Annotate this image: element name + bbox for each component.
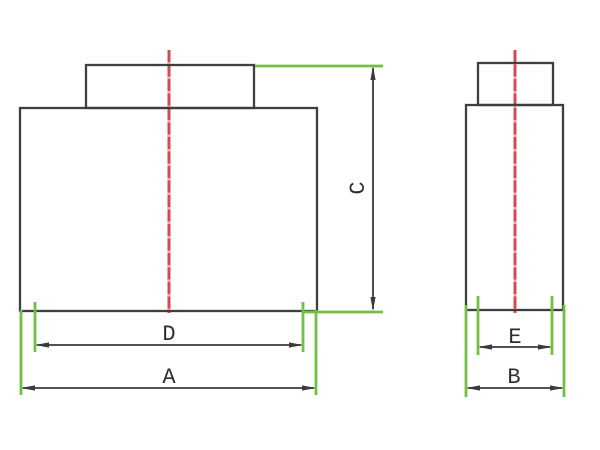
dim-label-E: E bbox=[508, 325, 521, 350]
drawing-canvas: C D A E bbox=[0, 0, 600, 450]
arrowhead-D-right bbox=[289, 342, 303, 347]
dim-label-A: A bbox=[162, 365, 176, 390]
dim-label-B: B bbox=[507, 365, 520, 390]
arrowhead-B-left bbox=[466, 385, 480, 390]
dimension-C: C bbox=[255, 66, 383, 312]
arrowhead-A-left bbox=[21, 385, 35, 390]
dim-label-D: D bbox=[162, 322, 175, 347]
arrowhead-C-bottom bbox=[370, 297, 375, 311]
side-view bbox=[466, 50, 563, 313]
arrowhead-E-right bbox=[538, 344, 552, 349]
dim-label-C: C bbox=[346, 181, 371, 194]
arrowhead-A-right bbox=[302, 385, 316, 390]
dimension-B: B bbox=[466, 305, 564, 397]
technical-drawing: C D A E bbox=[0, 0, 600, 450]
arrowhead-E-left bbox=[478, 344, 492, 349]
arrowhead-D-left bbox=[35, 342, 49, 347]
front-view bbox=[20, 50, 317, 313]
arrowhead-B-right bbox=[550, 385, 564, 390]
arrowhead-C-top bbox=[370, 66, 375, 80]
